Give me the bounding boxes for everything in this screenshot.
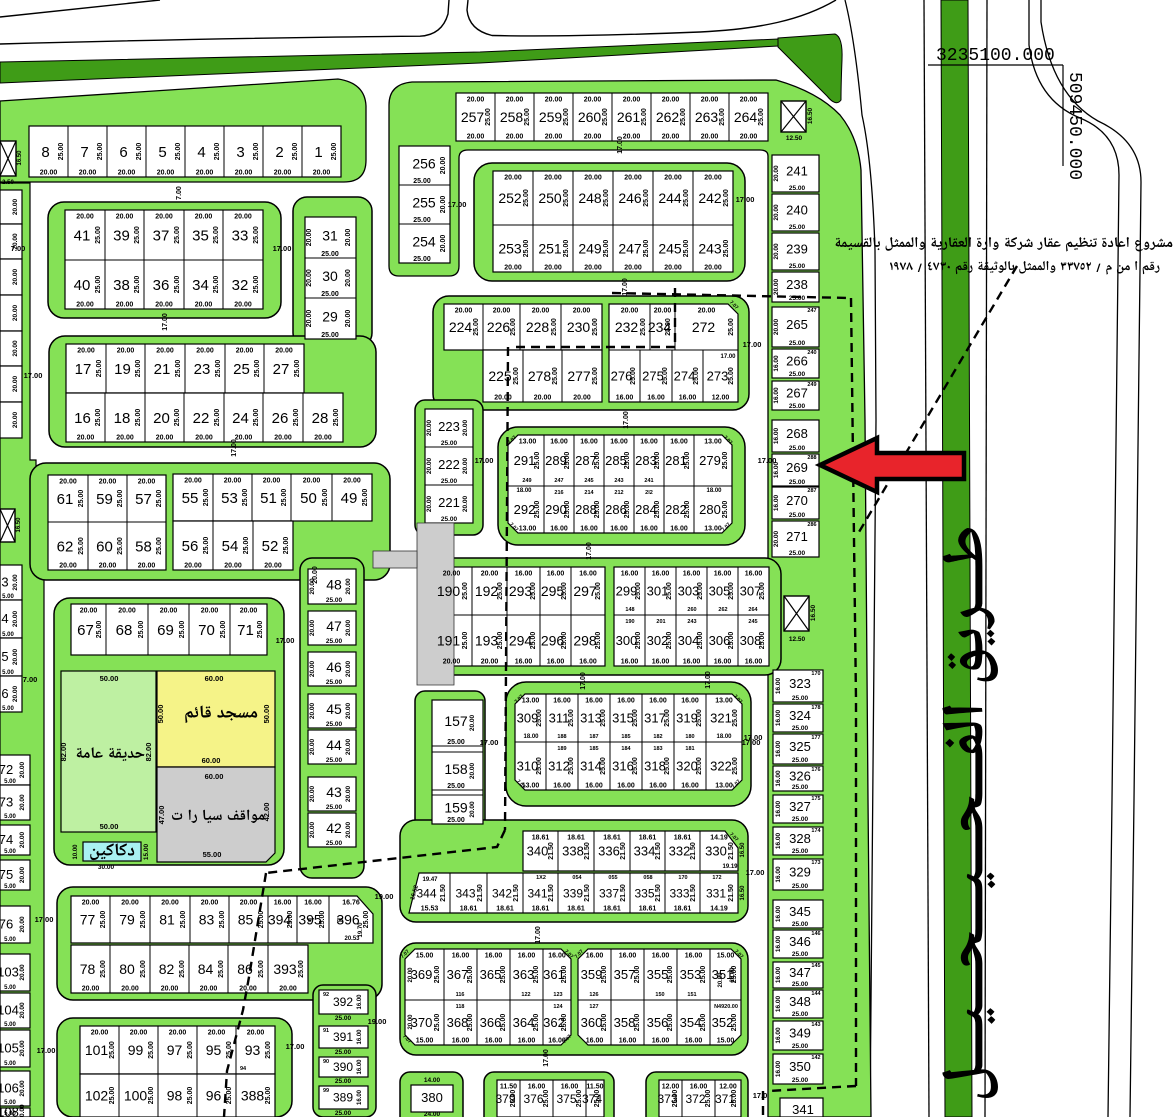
svg-text:20.00: 20.00	[160, 608, 178, 615]
svg-text:5.00: 5.00	[4, 937, 16, 943]
svg-text:98: 98	[167, 1088, 183, 1104]
svg-text:16.50: 16.50	[810, 604, 817, 621]
svg-text:260: 260	[578, 109, 602, 125]
svg-text:25.00: 25.00	[693, 367, 700, 385]
svg-text:25.00: 25.00	[600, 709, 607, 727]
svg-text:25.00: 25.00	[319, 911, 326, 929]
svg-text:271: 271	[786, 529, 808, 544]
svg-text:25.00: 25.00	[594, 501, 601, 519]
svg-text:20.00: 20.00	[82, 900, 100, 907]
svg-text:25.00: 25.00	[666, 582, 673, 600]
svg-text:245: 245	[748, 619, 757, 625]
svg-text:25.00: 25.00	[792, 1043, 809, 1050]
svg-text:5.00: 5.00	[4, 985, 16, 991]
svg-text:25.00: 25.00	[510, 1090, 517, 1108]
svg-text:23: 23	[194, 361, 211, 378]
svg-text:16.00: 16.00	[610, 526, 628, 533]
svg-text:17.00: 17.00	[273, 244, 292, 253]
svg-text:20.00: 20.00	[234, 214, 252, 221]
svg-text:16.00: 16.00	[561, 1084, 579, 1091]
svg-text:20.00: 20.00	[730, 967, 736, 983]
svg-text:16.00: 16.00	[773, 387, 780, 404]
svg-text:224: 224	[449, 319, 473, 335]
svg-text:16.00: 16.00	[357, 1059, 363, 1075]
svg-text:75: 75	[0, 867, 13, 882]
svg-text:25.00: 25.00	[326, 757, 343, 764]
svg-text:25.00: 25.00	[362, 489, 369, 507]
svg-text:17.00: 17.00	[743, 340, 762, 349]
svg-text:16.00: 16.00	[681, 783, 699, 790]
svg-text:21.50: 21.50	[655, 842, 662, 860]
svg-text:36: 36	[153, 277, 170, 294]
svg-text:16.00: 16.00	[640, 526, 658, 533]
svg-text:20.00: 20.00	[698, 308, 716, 315]
svg-text:1X2: 1X2	[536, 875, 546, 881]
svg-text:20.00: 20.00	[247, 1030, 265, 1037]
svg-text:37: 37	[153, 227, 170, 244]
svg-text:25.00: 25.00	[594, 452, 601, 470]
svg-text:25.00: 25.00	[722, 452, 729, 470]
svg-text:273: 273	[707, 369, 729, 384]
svg-text:20.00: 20.00	[195, 214, 213, 221]
svg-text:212: 212	[614, 490, 623, 496]
svg-text:20.00: 20.00	[545, 97, 563, 104]
svg-text:25.00: 25.00	[326, 679, 343, 686]
svg-text:318: 318	[644, 759, 666, 774]
svg-text:287: 287	[807, 488, 816, 494]
svg-text:16.00: 16.00	[775, 935, 782, 952]
svg-text:60.00: 60.00	[205, 674, 224, 683]
svg-text:69: 69	[157, 622, 174, 639]
svg-text:320: 320	[676, 759, 698, 774]
svg-text:17.00: 17.00	[480, 738, 499, 747]
svg-text:5.00: 5.00	[4, 779, 16, 785]
svg-text:25.00: 25.00	[680, 108, 687, 126]
svg-text:16.00: 16.00	[515, 659, 533, 666]
svg-text:15.00: 15.00	[717, 1038, 735, 1045]
svg-text:20.00: 20.00	[195, 302, 213, 309]
svg-text:142: 142	[811, 1055, 820, 1061]
svg-text:49: 49	[341, 490, 358, 507]
svg-text:25.00: 25.00	[500, 966, 507, 984]
svg-text:25.00: 25.00	[728, 367, 735, 385]
svg-text:101: 101	[85, 1042, 109, 1058]
svg-text:20.00: 20.00	[467, 134, 485, 141]
svg-text:054: 054	[572, 875, 582, 881]
svg-text:20.00: 20.00	[573, 395, 591, 402]
svg-text:6: 6	[119, 144, 127, 161]
svg-text:18.61: 18.61	[567, 835, 585, 842]
svg-text:25.00: 25.00	[447, 739, 465, 746]
svg-text:20.00: 20.00	[264, 563, 282, 570]
svg-text:181: 181	[685, 746, 694, 752]
svg-text:31: 31	[322, 228, 338, 244]
svg-text:18.61: 18.61	[603, 906, 621, 913]
svg-text:1: 1	[314, 144, 322, 161]
svg-text:25.00: 25.00	[257, 621, 264, 639]
svg-text:11.50: 11.50	[586, 1084, 603, 1091]
svg-text:20.00: 20.00	[99, 563, 117, 570]
svg-text:55.00: 55.00	[203, 850, 222, 859]
svg-text:264: 264	[734, 109, 758, 125]
svg-text:16.00: 16.00	[485, 1038, 503, 1045]
svg-text:228: 228	[526, 319, 550, 335]
svg-text:45: 45	[326, 701, 342, 717]
svg-text:25.00: 25.00	[789, 550, 806, 557]
svg-text:238: 238	[786, 277, 808, 292]
svg-text:18: 18	[114, 410, 131, 427]
svg-text:25.00: 25.00	[543, 1090, 550, 1108]
svg-text:122: 122	[521, 992, 530, 998]
svg-text:25.00: 25.00	[97, 143, 104, 161]
svg-text:157: 157	[444, 713, 468, 729]
svg-text:21.50: 21.50	[690, 884, 697, 902]
svg-text:15.00: 15.00	[143, 843, 150, 860]
svg-text:340: 340	[527, 844, 549, 859]
svg-text:25.00: 25.00	[156, 537, 163, 555]
svg-text:25.00: 25.00	[292, 143, 299, 161]
svg-text:20.00: 20.00	[701, 134, 719, 141]
svg-text:25.00: 25.00	[551, 318, 558, 336]
svg-text:257: 257	[461, 109, 485, 125]
svg-text:20.00: 20.00	[279, 986, 297, 993]
svg-text:20.00: 20.00	[116, 435, 134, 442]
svg-text:25.00: 25.00	[533, 1014, 540, 1032]
svg-text:269: 269	[786, 460, 808, 475]
svg-text:20.00: 20.00	[116, 214, 134, 221]
svg-text:20.00: 20.00	[573, 308, 591, 315]
svg-text:25.00: 25.00	[326, 804, 343, 811]
svg-text:20.00: 20.00	[345, 738, 352, 755]
svg-text:25.00: 25.00	[643, 189, 650, 207]
svg-text:20.00: 20.00	[240, 608, 258, 615]
svg-text:391: 391	[333, 1030, 353, 1044]
svg-text:19: 19	[114, 361, 131, 378]
svg-text:25.00: 25.00	[561, 966, 568, 984]
svg-text:15.00: 15.00	[717, 953, 735, 960]
svg-text:20.00: 20.00	[469, 714, 476, 731]
svg-text:16.00: 16.00	[683, 659, 701, 666]
svg-text:344: 344	[416, 886, 436, 900]
svg-text:19.19: 19.19	[722, 864, 738, 870]
svg-text:16.50: 16.50	[17, 150, 23, 166]
svg-text:12.00: 12.00	[719, 1084, 737, 1091]
svg-text:18.61: 18.61	[674, 835, 692, 842]
svg-text:180: 180	[685, 734, 694, 740]
svg-text:25.00: 25.00	[530, 632, 537, 650]
svg-text:151: 151	[687, 992, 696, 998]
svg-text:245: 245	[658, 241, 682, 257]
svg-text:25.00: 25.00	[363, 911, 370, 929]
svg-text:20.00: 20.00	[201, 608, 219, 615]
svg-text:17.00: 17.00	[622, 278, 629, 296]
svg-text:20.00: 20.00	[130, 1030, 148, 1037]
svg-text:20.00: 20.00	[77, 435, 95, 442]
svg-text:16.00: 16.00	[452, 1038, 470, 1045]
svg-text:16.00: 16.00	[304, 900, 322, 907]
svg-text:25.00: 25.00	[719, 108, 726, 126]
svg-text:3235100.000: 3235100.000	[936, 46, 1055, 66]
svg-text:25.00: 25.00	[792, 981, 809, 988]
svg-text:85: 85	[238, 912, 254, 928]
svg-text:25.00: 25.00	[728, 318, 735, 336]
svg-text:20.00: 20.00	[469, 801, 476, 818]
svg-text:20.00: 20.00	[701, 97, 719, 104]
svg-text:25.00: 25.00	[148, 1087, 155, 1105]
svg-text:25.00: 25.00	[117, 537, 124, 555]
svg-text:246: 246	[618, 190, 642, 206]
svg-text:25.00: 25.00	[434, 1014, 441, 1032]
svg-text:20.00: 20.00	[169, 1030, 187, 1037]
svg-text:297: 297	[573, 583, 597, 599]
svg-text:20.00: 20.00	[155, 214, 173, 221]
svg-text:20.00: 20.00	[82, 986, 100, 993]
svg-text:25.00: 25.00	[253, 276, 260, 294]
svg-text:16.00: 16.00	[775, 995, 782, 1012]
svg-text:25.00: 25.00	[203, 537, 210, 555]
svg-text:18.00: 18.00	[716, 734, 732, 740]
svg-text:260: 260	[687, 607, 696, 613]
svg-text:25.00: 25.00	[321, 251, 339, 258]
svg-text:20.00: 20.00	[117, 348, 135, 355]
svg-text:20.00: 20.00	[236, 348, 254, 355]
svg-text:247: 247	[554, 478, 563, 484]
svg-text:183: 183	[653, 746, 662, 752]
svg-text:230: 230	[567, 319, 591, 335]
svg-text:222: 222	[438, 457, 460, 472]
svg-text:25.00: 25.00	[696, 757, 703, 775]
svg-text:20.00: 20.00	[345, 269, 352, 287]
svg-text:25.00: 25.00	[100, 911, 107, 929]
svg-text:25.00: 25.00	[635, 582, 642, 600]
svg-text:5.00: 5.00	[4, 814, 16, 820]
svg-text:20.00: 20.00	[116, 302, 134, 309]
svg-text:364: 364	[513, 1015, 535, 1030]
svg-text:16.00: 16.00	[647, 395, 665, 402]
svg-text:20.00: 20.00	[59, 479, 77, 486]
svg-text:20.00: 20.00	[773, 278, 780, 295]
svg-text:243: 243	[687, 619, 696, 625]
svg-text:214: 214	[584, 490, 594, 496]
svg-text:190: 190	[625, 619, 634, 625]
svg-text:25.00: 25.00	[333, 409, 340, 427]
svg-text:258: 258	[500, 109, 524, 125]
svg-text:20.00: 20.00	[196, 170, 214, 177]
svg-text:20.00: 20.00	[118, 170, 136, 177]
svg-text:17.00: 17.00	[744, 733, 763, 742]
svg-text:20.00: 20.00	[773, 530, 780, 547]
svg-text:17.00: 17.00	[758, 456, 777, 465]
svg-text:256: 256	[412, 156, 436, 172]
svg-text:94: 94	[240, 1066, 247, 1072]
svg-text:20.00: 20.00	[306, 269, 313, 287]
svg-text:103: 103	[0, 965, 19, 980]
svg-text:25.00: 25.00	[533, 966, 540, 984]
svg-text:176: 176	[811, 767, 820, 773]
svg-text:20.00: 20.00	[623, 97, 641, 104]
svg-text:18.61: 18.61	[639, 906, 657, 913]
svg-text:72: 72	[0, 762, 13, 777]
svg-text:25.00: 25.00	[732, 757, 739, 775]
svg-text:143: 143	[811, 1022, 820, 1028]
svg-text:372: 372	[685, 1092, 705, 1106]
svg-text:286: 286	[807, 522, 816, 528]
svg-text:16.00: 16.00	[550, 439, 568, 446]
svg-text:25.00: 25.00	[722, 501, 729, 519]
svg-text:5.00: 5.00	[4, 1111, 16, 1117]
svg-text:20.00: 20.00	[345, 310, 352, 328]
svg-text:25.00: 25.00	[632, 757, 639, 775]
svg-text:100: 100	[124, 1088, 148, 1104]
svg-text:298: 298	[573, 633, 597, 649]
svg-text:184: 184	[621, 746, 631, 752]
svg-text:25.00: 25.00	[138, 621, 145, 639]
svg-text:105: 105	[0, 1041, 19, 1056]
svg-text:250: 250	[538, 190, 562, 206]
svg-text:56: 56	[182, 538, 199, 555]
svg-text:20.00: 20.00	[345, 821, 352, 838]
svg-text:317: 317	[644, 711, 666, 726]
svg-text:25.00: 25.00	[281, 489, 288, 507]
svg-text:12.50: 12.50	[789, 636, 806, 643]
svg-text:20.00: 20.00	[19, 866, 26, 883]
svg-text:25.00: 25.00	[213, 226, 220, 244]
svg-text:279: 279	[699, 453, 721, 468]
svg-text:20.00: 20.00	[138, 563, 156, 570]
svg-text:18.61: 18.61	[496, 906, 514, 913]
svg-text:249: 249	[522, 478, 531, 484]
svg-text:158: 158	[444, 761, 468, 777]
svg-text:16.00: 16.00	[621, 571, 639, 578]
svg-text:314: 314	[580, 759, 602, 774]
svg-text:16.00: 16.00	[652, 953, 670, 960]
svg-text:16.00: 16.00	[670, 439, 688, 446]
svg-text:25.00: 25.00	[792, 951, 809, 958]
svg-text:321: 321	[710, 711, 732, 726]
svg-text:92: 92	[323, 992, 329, 998]
svg-text:25.00: 25.00	[467, 966, 474, 984]
svg-text:21.50: 21.50	[584, 842, 591, 860]
svg-text:20.00: 20.00	[200, 986, 218, 993]
svg-text:7: 7	[80, 144, 88, 161]
svg-text:25.00: 25.00	[95, 409, 102, 427]
svg-text:25.00: 25.00	[723, 240, 730, 258]
svg-text:16.00: 16.00	[775, 966, 782, 983]
svg-text:25.00: 25.00	[534, 452, 541, 470]
svg-text:342: 342	[492, 886, 512, 900]
svg-text:5.00: 5.00	[4, 849, 16, 855]
svg-text:293: 293	[509, 583, 533, 599]
svg-text:20.53: 20.53	[344, 936, 360, 942]
svg-text:25.00: 25.00	[705, 1090, 712, 1108]
svg-text:393: 393	[273, 961, 297, 977]
svg-text:25.00: 25.00	[601, 1014, 608, 1032]
svg-text:25.00: 25.00	[326, 638, 343, 645]
svg-text:20.00: 20.00	[118, 608, 136, 615]
svg-text:25.00: 25.00	[664, 757, 671, 775]
svg-text:25.00: 25.00	[265, 1041, 272, 1059]
svg-text:16.00: 16.00	[619, 1038, 637, 1045]
svg-text:47.00: 47.00	[157, 806, 166, 825]
svg-text:20.00: 20.00	[306, 310, 313, 328]
svg-text:25.00: 25.00	[792, 757, 809, 764]
svg-text:25.00: 25.00	[322, 489, 329, 507]
svg-text:25.00: 25.00	[462, 582, 469, 600]
svg-text:17.00: 17.00	[448, 200, 467, 209]
svg-text:16.00: 16.00	[773, 494, 780, 511]
svg-text:20.00: 20.00	[80, 608, 98, 615]
svg-text:25.00: 25.00	[187, 1041, 194, 1059]
svg-text:20.00: 20.00	[309, 702, 316, 719]
svg-text:16.00: 16.00	[452, 953, 470, 960]
svg-text:21.50: 21.50	[477, 884, 484, 902]
svg-text:20.00: 20.00	[138, 479, 156, 486]
svg-text:251: 251	[538, 241, 562, 257]
svg-text:25.00: 25.00	[326, 721, 343, 728]
svg-text:104: 104	[0, 1003, 19, 1018]
svg-text:28: 28	[312, 410, 329, 427]
svg-text:25.00: 25.00	[500, 1014, 507, 1032]
svg-text:18.61: 18.61	[674, 906, 692, 913]
svg-text:20.00: 20.00	[12, 685, 19, 702]
svg-text:20.00: 20.00	[462, 495, 469, 512]
svg-text:365: 365	[480, 967, 502, 982]
svg-text:20.00: 20.00	[156, 348, 174, 355]
svg-text:392: 392	[333, 995, 353, 1009]
svg-text:20.00: 20.00	[623, 134, 641, 141]
svg-text:20.00: 20.00	[12, 268, 19, 285]
svg-text:17.00: 17.00	[623, 411, 630, 429]
svg-text:253: 253	[498, 241, 522, 257]
svg-text:25.00: 25.00	[683, 240, 690, 258]
svg-text:71: 71	[237, 622, 254, 639]
svg-text:17: 17	[75, 361, 92, 378]
svg-text:25.00: 25.00	[187, 1087, 194, 1105]
svg-text:25.00: 25.00	[117, 490, 124, 508]
svg-text:25.00: 25.00	[792, 816, 809, 823]
svg-text:48: 48	[326, 577, 342, 593]
svg-text:20.00: 20.00	[19, 1040, 26, 1057]
svg-text:21.50: 21.50	[728, 884, 735, 902]
svg-text:20.00: 20.00	[19, 1002, 26, 1019]
svg-text:182: 182	[653, 734, 662, 740]
svg-text:244: 244	[658, 190, 682, 206]
svg-text:16.00: 16.00	[485, 953, 503, 960]
svg-text:20.00: 20.00	[443, 571, 461, 578]
svg-text:16.00: 16.00	[652, 1038, 670, 1045]
svg-text:19.00: 19.00	[375, 892, 394, 901]
svg-text:25.00: 25.00	[58, 143, 65, 161]
svg-text:25.00: 25.00	[600, 757, 607, 775]
svg-text:4: 4	[197, 144, 205, 161]
svg-text:241: 241	[644, 478, 653, 484]
svg-text:50.00: 50.00	[100, 674, 119, 683]
svg-text:249: 249	[578, 241, 602, 257]
svg-text:13.00: 13.00	[704, 439, 722, 446]
svg-text:17.00: 17.00	[286, 1042, 305, 1051]
svg-text:25.00: 25.00	[789, 403, 806, 410]
svg-text:25.00: 25.00	[602, 108, 609, 126]
svg-text:20.00: 20.00	[99, 479, 117, 486]
svg-text:25.00: 25.00	[592, 318, 599, 336]
svg-text:25.00: 25.00	[536, 709, 543, 727]
svg-text:25.00: 25.00	[641, 108, 648, 126]
svg-text:058: 058	[643, 875, 652, 881]
svg-text:25.00: 25.00	[789, 263, 806, 270]
svg-text:93: 93	[245, 1042, 261, 1058]
svg-text:25.00: 25.00	[413, 178, 431, 185]
svg-text:25.00: 25.00	[109, 1041, 116, 1059]
